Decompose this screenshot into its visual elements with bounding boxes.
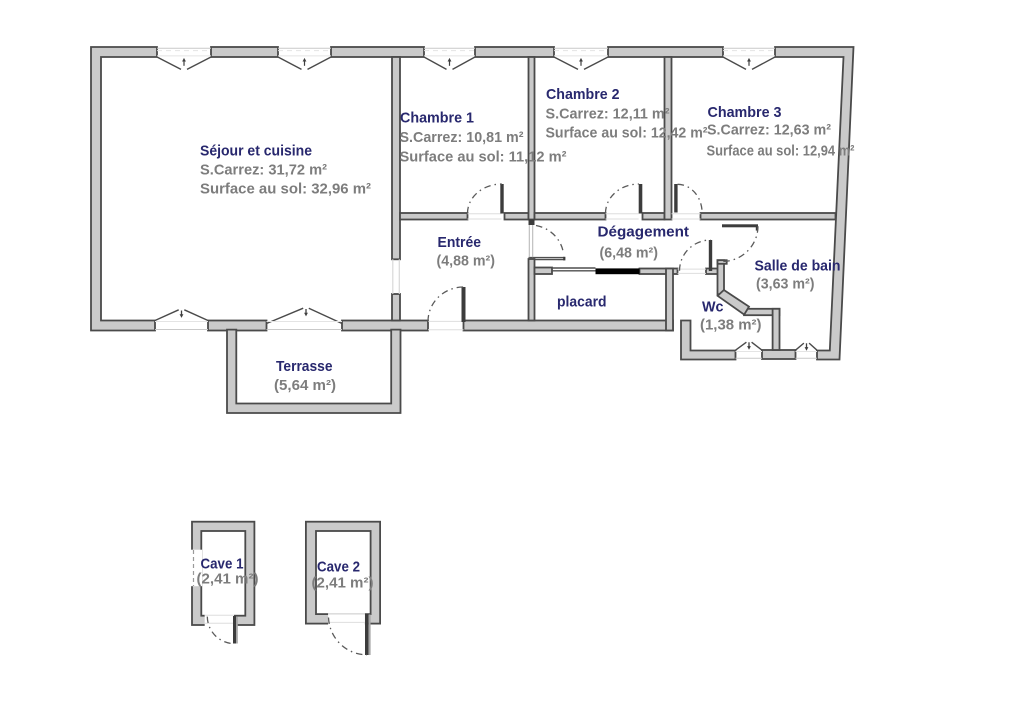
- svg-text:(2,41 m²): (2,41 m²): [197, 572, 259, 588]
- svg-text:Surface au sol: 32,96 m²: Surface au sol: 32,96 m²: [200, 181, 371, 198]
- svg-text:Terrasse: Terrasse: [276, 358, 333, 375]
- svg-text:Surface au sol: 11,12 m²: Surface au sol: 11,12 m²: [400, 149, 567, 166]
- svg-text:(5,64 m²): (5,64 m²): [274, 378, 336, 394]
- svg-text:Dégagement: Dégagement: [598, 224, 690, 241]
- svg-text:(2,41 m²): (2,41 m²): [312, 576, 374, 592]
- svg-text:Surface au sol: 12,94 m²: Surface au sol: 12,94 m²: [707, 143, 855, 160]
- svg-text:Entrée: Entrée: [438, 234, 482, 251]
- svg-text:(3,63 m²): (3,63 m²): [756, 277, 815, 293]
- svg-text:S.Carrez: 10,81 m²: S.Carrez: 10,81 m²: [400, 129, 524, 146]
- svg-text:Chambre 2: Chambre 2: [546, 86, 620, 103]
- svg-text:S.Carrez: 31,72 m²: S.Carrez: 31,72 m²: [200, 162, 327, 179]
- svg-text:S.Carrez: 12,63 m²: S.Carrez: 12,63 m²: [707, 122, 831, 139]
- svg-text:Cave 2: Cave 2: [317, 559, 360, 576]
- svg-text:(6,48 m²): (6,48 m²): [600, 246, 659, 262]
- svg-text:Wc: Wc: [702, 299, 724, 316]
- svg-text:(4,88 m²): (4,88 m²): [437, 254, 496, 270]
- svg-text:Chambre 1: Chambre 1: [400, 110, 474, 127]
- svg-text:Chambre 3: Chambre 3: [708, 104, 782, 121]
- svg-text:S.Carrez: 12,11 m²: S.Carrez: 12,11 m²: [546, 106, 670, 123]
- svg-text:placard: placard: [557, 294, 607, 311]
- svg-text:Cave 1: Cave 1: [201, 556, 244, 573]
- svg-text:Salle de bain: Salle de bain: [755, 258, 841, 275]
- svg-text:Séjour et cuisine: Séjour et cuisine: [200, 143, 312, 160]
- svg-text:(1,38 m²): (1,38 m²): [700, 318, 762, 334]
- svg-text:Surface au sol: 12,42 m²: Surface au sol: 12,42 m²: [546, 125, 708, 142]
